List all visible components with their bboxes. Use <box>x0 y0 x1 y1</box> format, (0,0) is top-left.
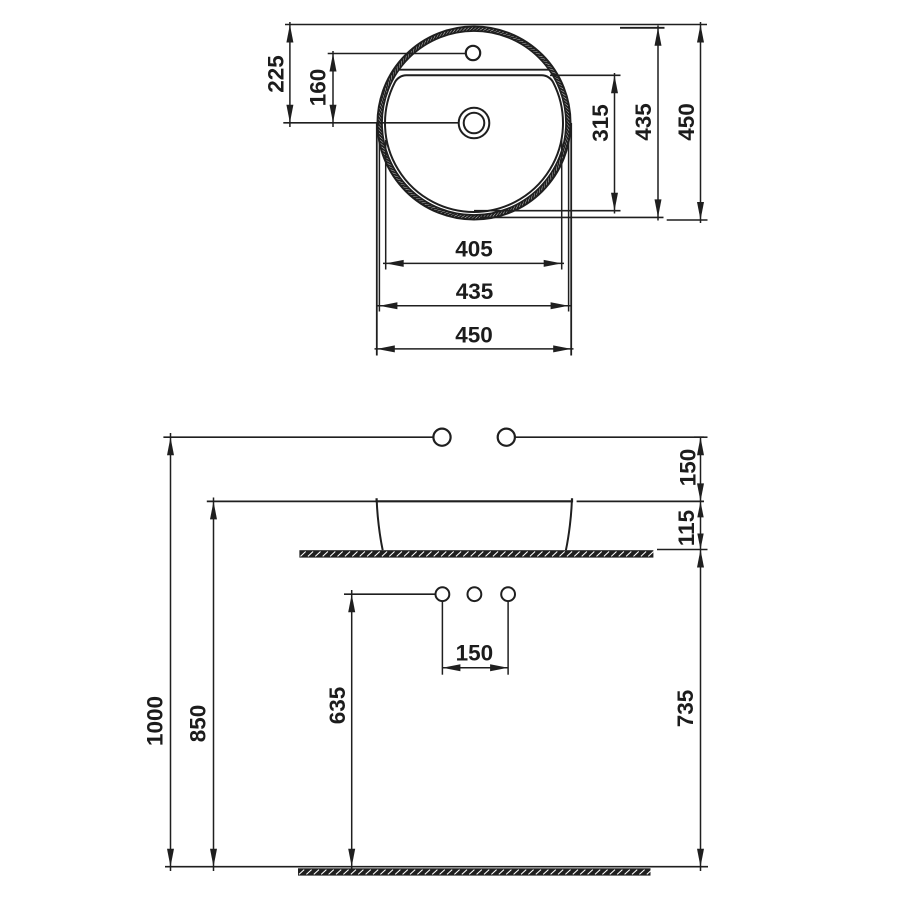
svg-text:405: 405 <box>455 237 493 262</box>
svg-text:450: 450 <box>674 103 699 141</box>
svg-text:160: 160 <box>306 69 331 107</box>
svg-text:450: 450 <box>455 323 493 348</box>
svg-text:150: 150 <box>676 449 701 487</box>
svg-text:315: 315 <box>588 104 613 142</box>
svg-text:635: 635 <box>325 687 350 725</box>
svg-text:225: 225 <box>264 55 289 93</box>
svg-text:435: 435 <box>456 279 494 304</box>
svg-text:850: 850 <box>186 705 211 743</box>
svg-text:735: 735 <box>673 690 698 728</box>
svg-text:115: 115 <box>674 510 699 546</box>
svg-text:1000: 1000 <box>143 696 168 746</box>
svg-text:435: 435 <box>631 103 656 141</box>
svg-text:150: 150 <box>456 641 494 666</box>
